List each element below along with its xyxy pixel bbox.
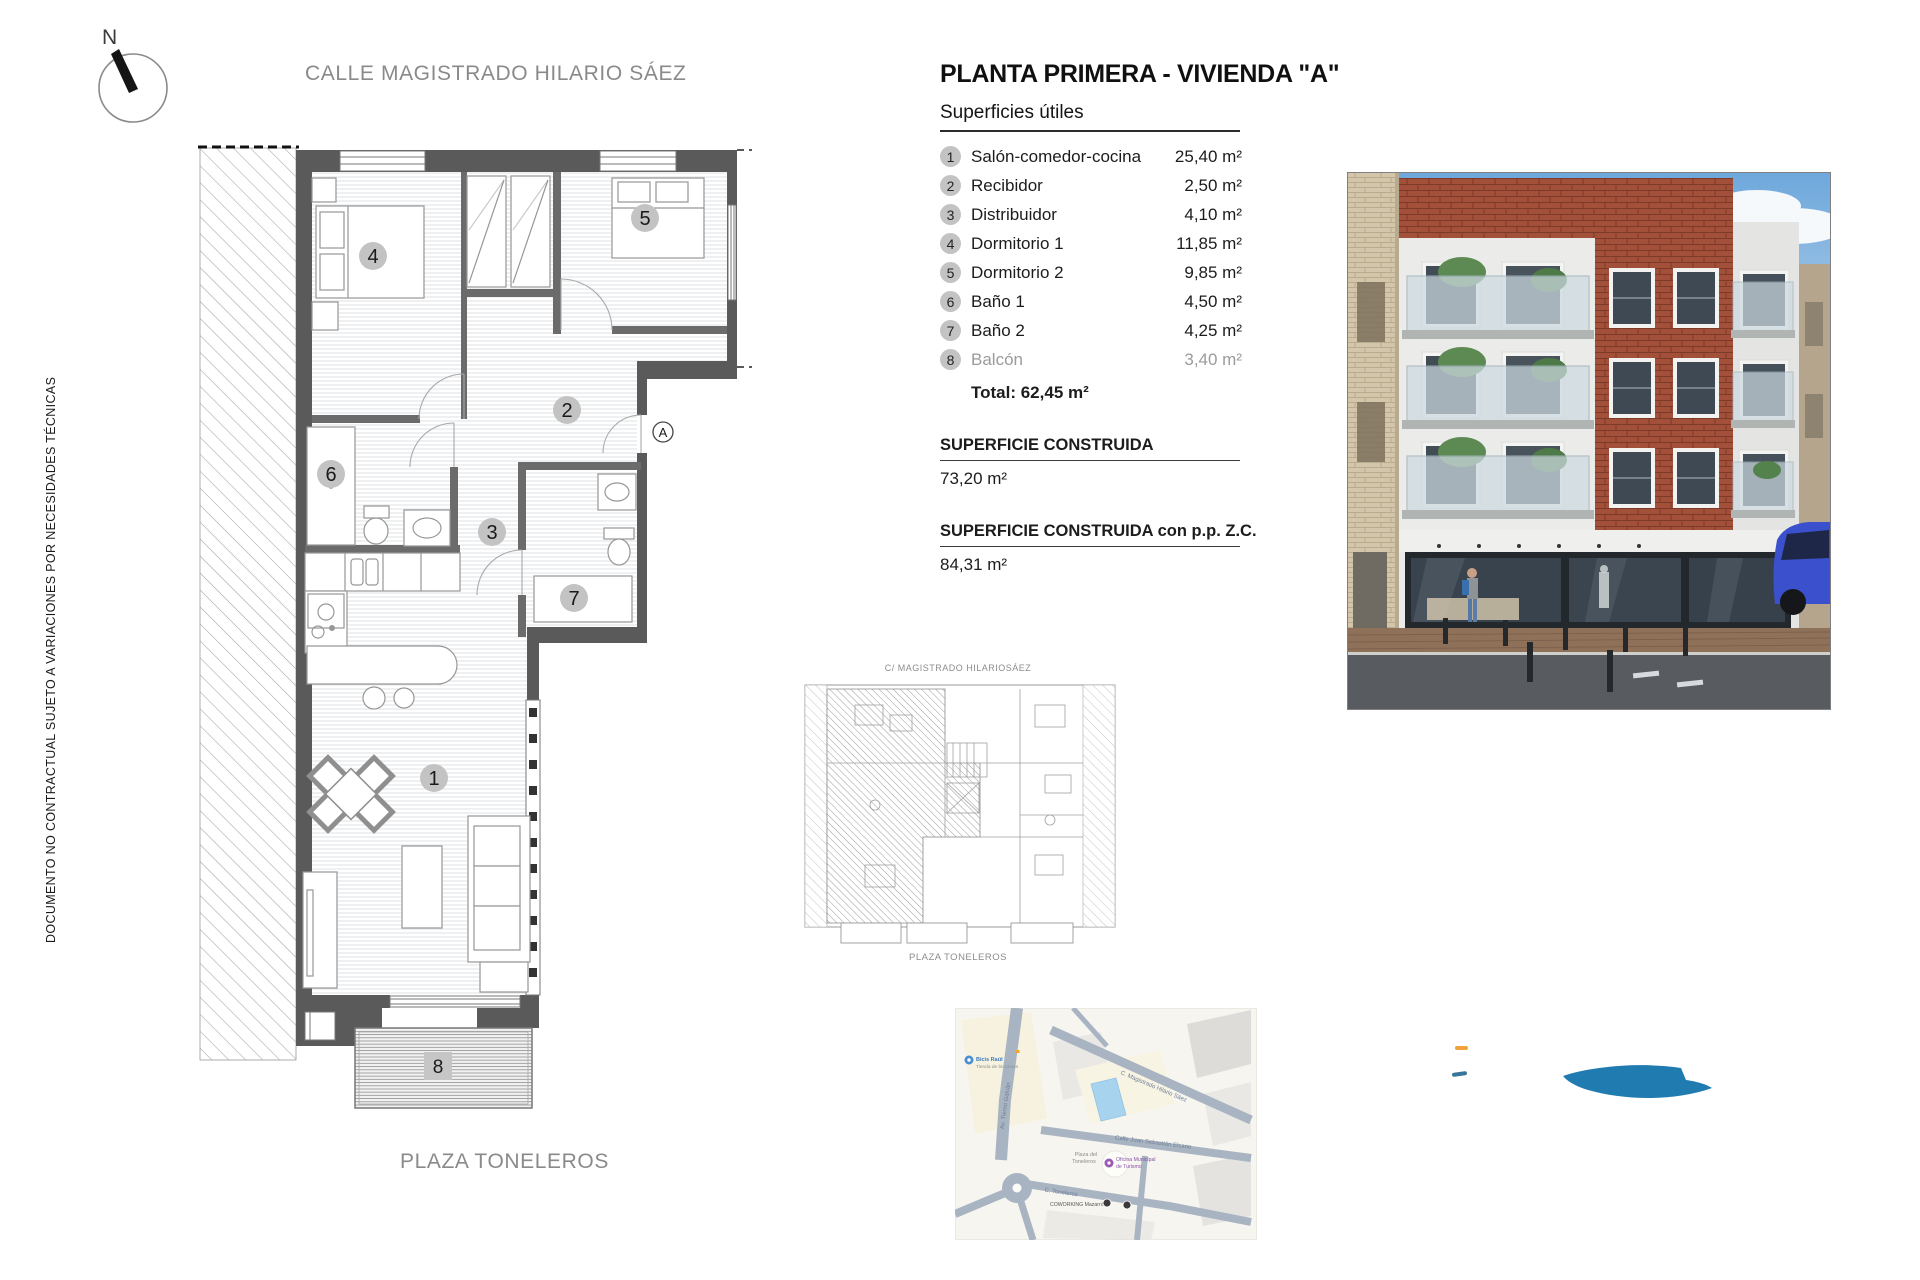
room-number-badge: 5 <box>940 262 961 283</box>
surface-row: 8 Balcón 3,40 m² <box>940 345 1242 374</box>
room-area: 25,40 m² <box>1175 147 1242 167</box>
mannequin <box>1599 572 1609 608</box>
brick-parapet <box>1399 178 1733 238</box>
room-badge-3: 3 <box>486 522 497 544</box>
blue-car <box>1773 522 1831 615</box>
neighbour-garage <box>1353 552 1387 632</box>
ground-floor <box>1399 530 1799 628</box>
kitchen-sink <box>351 559 363 585</box>
toilet-tank <box>364 506 389 518</box>
built-surface-zc-value: 84,31 m² <box>940 555 1240 575</box>
room-name: Dormitorio 2 <box>971 263 1184 283</box>
page-title: PLANTA PRIMERA - VIVIENDA "A" <box>940 60 1242 89</box>
room-name: Recibidor <box>971 176 1184 196</box>
room-area: 3,40 m² <box>1184 350 1242 370</box>
surface-row: 6 Baño 1 4,50 m² <box>940 287 1242 316</box>
right-balconies <box>1731 270 1795 518</box>
surface-row: 3 Distribuidor 4,10 m² <box>940 200 1242 229</box>
room-badge-1: 1 <box>428 768 439 790</box>
surfaces-subtitle: Superficies útiles <box>940 102 1240 132</box>
stool <box>394 688 414 708</box>
room-area: 11,85 m² <box>1176 234 1242 254</box>
fridge <box>308 594 344 628</box>
surface-summary-panel: PLANTA PRIMERA - VIVIENDA "A" Superficie… <box>940 60 1242 575</box>
street-top-label: CALLE MAGISTRADO HILARIO SÁEZ <box>305 62 687 86</box>
room-number-badge: 3 <box>940 204 961 225</box>
room-area: 9,85 m² <box>1184 263 1242 283</box>
map-poi-turismo-1: Oficina Municipal <box>1116 1157 1156 1163</box>
room-number-badge: 1 <box>940 146 961 167</box>
room-badge-8: 8 <box>433 1057 444 1078</box>
map-poi-coworking: COWORKING Mazarrón <box>1050 1202 1107 1208</box>
location-map: Av. Tierno Galván C. Magistrado Hilario … <box>955 1008 1257 1240</box>
map-plaza-label-1: Plaza del <box>1075 1152 1098 1158</box>
room-name: Baño 2 <box>971 321 1184 341</box>
room-number-badge: 2 <box>940 175 961 196</box>
surfaces-table: 1 Salón-comedor-cocina 25,40 m² 2 Recibi… <box>940 142 1242 374</box>
surface-row: 2 Recibidor 2,50 m² <box>940 171 1242 200</box>
surface-row: 4 Dormitorio 1 11,85 m² <box>940 229 1242 258</box>
surface-row: 7 Baño 2 4,25 m² <box>940 316 1242 345</box>
left-balconies <box>1402 257 1594 519</box>
room-badge-5: 5 <box>639 208 650 230</box>
map-orange-marker-icon <box>1015 1050 1020 1053</box>
building-render-image <box>1347 172 1831 710</box>
plaza-bottom-label: PLAZA TONELEROS <box>400 1150 609 1174</box>
room-badge-2: 2 <box>561 400 572 422</box>
built-surface-block: SUPERFICIE CONSTRUIDA 73,20 m² <box>940 436 1240 489</box>
toilet-bath2 <box>608 539 630 565</box>
room-number-badge: 4 <box>940 233 961 254</box>
neighbour-dashed-outline <box>737 150 752 367</box>
balcony <box>355 1028 532 1108</box>
map-poi-bike: Bicis Raúl <box>976 1057 1003 1063</box>
compass-n-label: N <box>102 26 117 49</box>
nightstand <box>312 178 336 202</box>
room-number-badge: 7 <box>940 320 961 341</box>
main-floor-plan: 4 5 2 6 3 7 1 8 A <box>196 128 752 1130</box>
adjacent-building-hatch <box>200 148 296 1060</box>
stool <box>363 687 385 709</box>
room-badge-4: 4 <box>367 246 378 268</box>
room-area: 4,10 m² <box>1184 205 1242 225</box>
floorplan-document: N CALLE MAGISTRADO HILARIO SÁEZ PLAZA TO… <box>0 0 1920 1280</box>
road <box>1347 655 1831 710</box>
built-surface-value: 73,20 m² <box>940 469 1240 489</box>
map-poi-turismo-2: de Turismo <box>1116 1164 1142 1170</box>
room-area: 2,50 m² <box>1184 176 1242 196</box>
logo-blue-swoosh <box>1563 1062 1713 1104</box>
keyplan-balconies <box>841 923 1073 943</box>
coffee-table <box>402 846 442 928</box>
room-number-badge: 8 <box>940 349 961 370</box>
room-name: Dormitorio 1 <box>971 234 1176 254</box>
room-badge-7: 7 <box>568 588 579 610</box>
room-name: Distribuidor <box>971 205 1184 225</box>
room-name: Balcón <box>971 350 1184 370</box>
map-plaza-label-2: Toneleros <box>1072 1159 1096 1165</box>
map-marker-icon <box>1123 1201 1131 1209</box>
built-surface-zc-label: SUPERFICIE CONSTRUIDA con p.p. Z.C. <box>940 522 1240 547</box>
kitchen-island <box>307 646 457 684</box>
nightstand <box>312 302 338 330</box>
room-name: Salón-comedor-cocina <box>971 147 1175 167</box>
side-table <box>480 962 528 992</box>
built-surface-zc-block: SUPERFICIE CONSTRUIDA con p.p. Z.C. 84,3… <box>940 522 1240 575</box>
surface-row: 1 Salón-comedor-cocina 25,40 m² <box>940 142 1242 171</box>
toilet-bath1 <box>364 518 388 544</box>
room-area: 4,25 m² <box>1184 321 1242 341</box>
room-area: 4,50 m² <box>1184 292 1242 312</box>
north-compass-icon: N <box>88 22 180 130</box>
total-area: Total: 62,45 m² <box>971 383 1242 403</box>
entrance-opening <box>637 415 647 453</box>
entrance-badge: A <box>659 425 668 440</box>
room-name: Baño 1 <box>971 292 1184 312</box>
toilet-tank <box>604 528 634 539</box>
keyplan-street-top: C/ MAGISTRADO HILARIOSÁEZ <box>885 663 1032 673</box>
built-surface-label: SUPERFICIE CONSTRUIDA <box>940 436 1240 461</box>
keyplan-street-bottom: PLAZA TONELEROS <box>909 952 1007 963</box>
disclaimer-vertical-text: DOCUMENTO NO CONTRACTUAL SUJETO A VARIAC… <box>44 438 58 943</box>
room-number-badge: 6 <box>940 291 961 312</box>
logo-teal-dash <box>1452 1071 1467 1077</box>
surface-row: 5 Dormitorio 2 9,85 m² <box>940 258 1242 287</box>
map-marker-icon <box>1103 1199 1111 1207</box>
room-badge-6: 6 <box>325 464 336 486</box>
map-poi-bike-sub: Tienda de bicicletas <box>976 1064 1019 1070</box>
key-plan: C/ MAGISTRADO HILARIOSÁEZ PLAZA TONELERO… <box>795 655 1125 965</box>
logo-orange-dash <box>1455 1046 1468 1050</box>
